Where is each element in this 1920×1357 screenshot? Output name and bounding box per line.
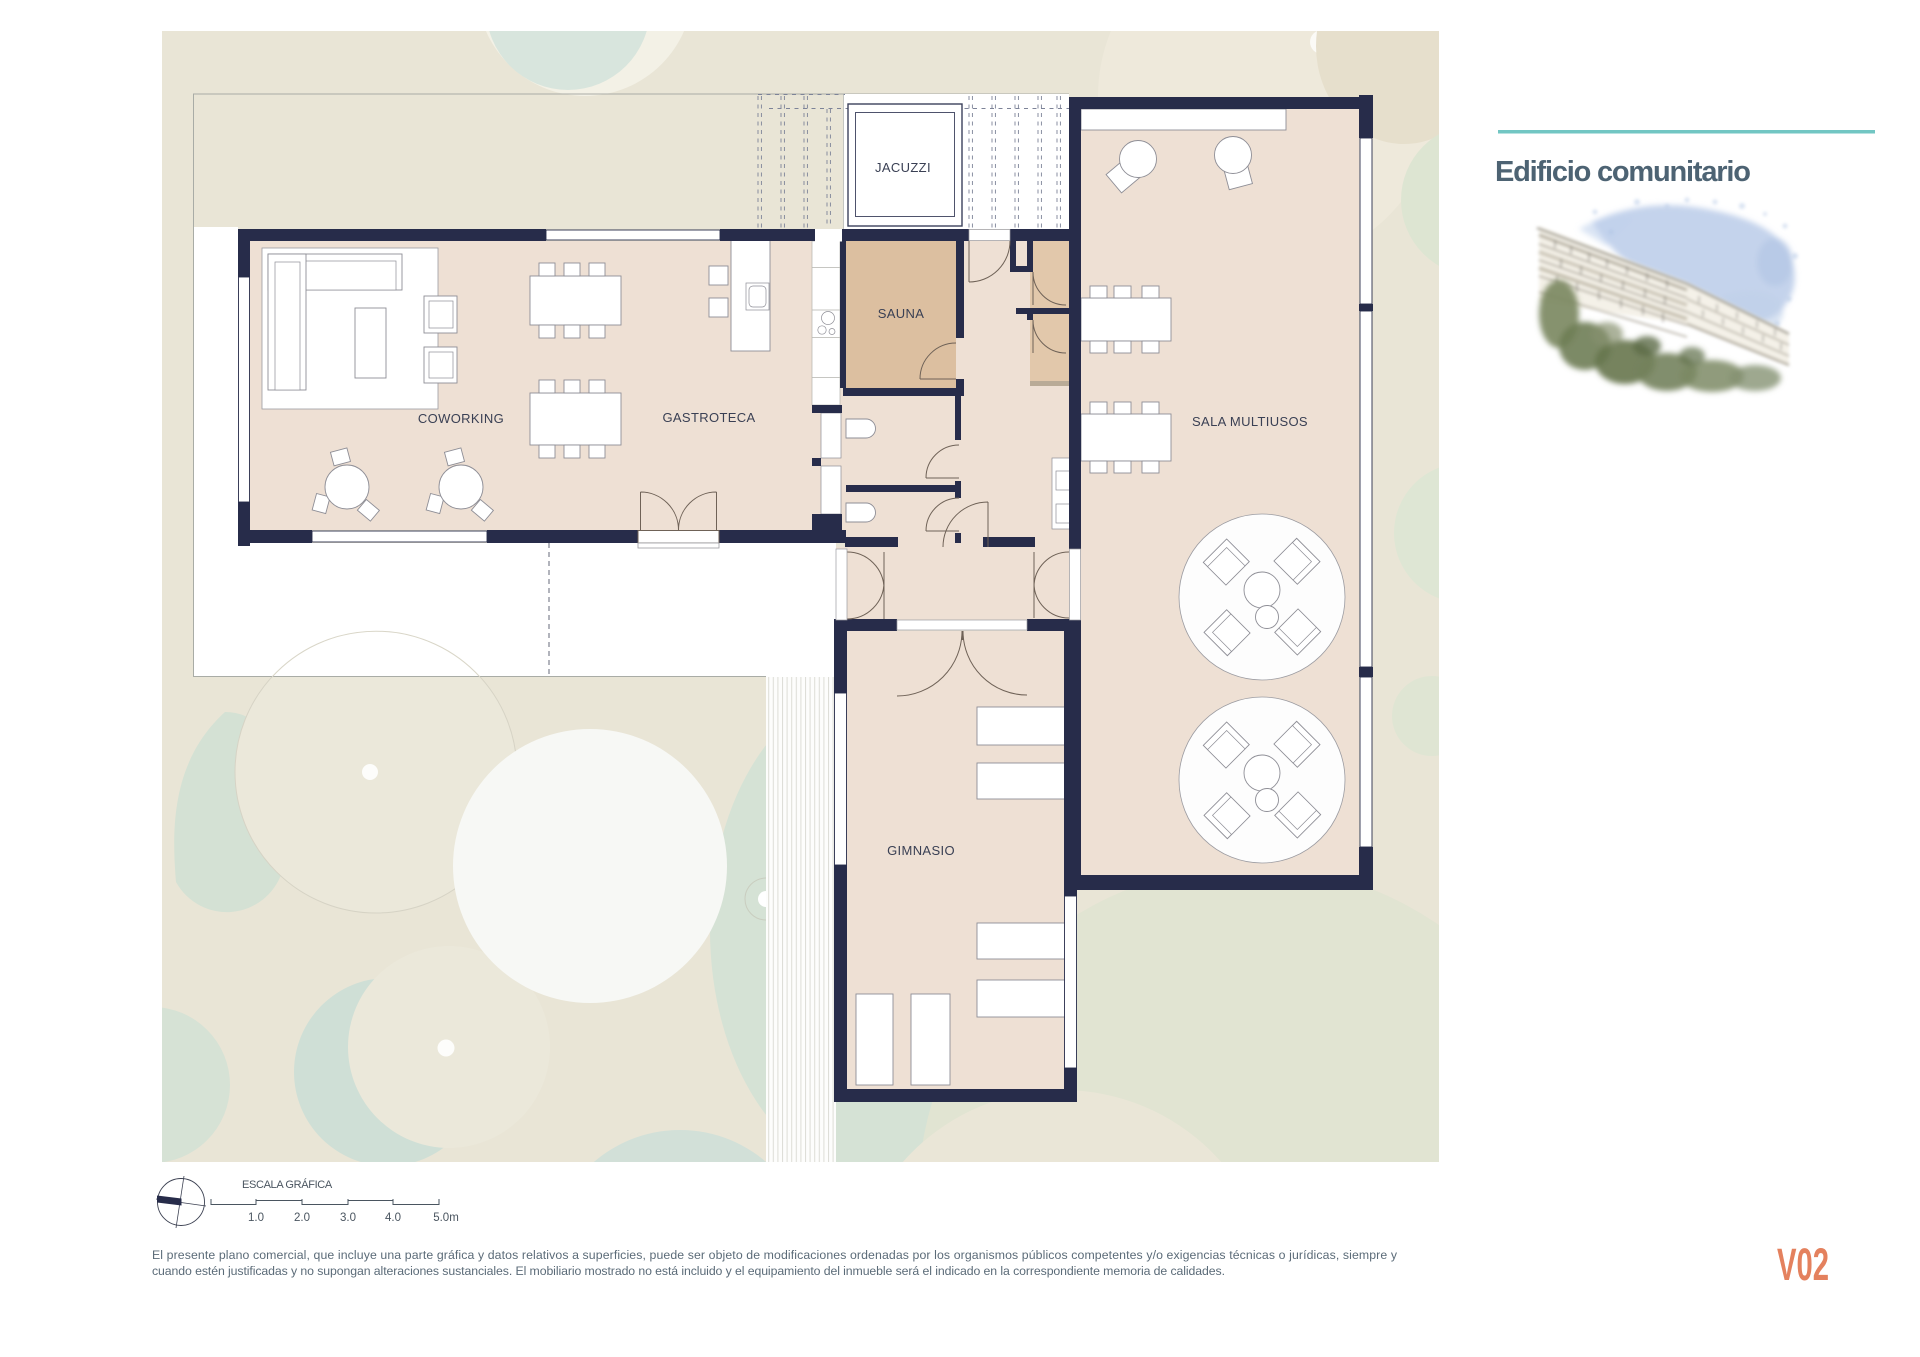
svg-text:2.0: 2.0 (294, 1212, 310, 1224)
svg-text:GASTROTECA: GASTROTECA (662, 410, 755, 425)
svg-text:El presente plano comercial, q: El presente plano comercial, que incluye… (152, 1248, 1398, 1262)
svg-text:3.0: 3.0 (340, 1212, 356, 1224)
svg-text:V02: V02 (1777, 1239, 1829, 1290)
svg-text:cuando estén justificadas y no: cuando estén justificadas y no supongan … (152, 1264, 1225, 1278)
svg-text:1.0: 1.0 (248, 1212, 264, 1224)
svg-text:SAUNA: SAUNA (878, 306, 925, 321)
svg-text:GIMNASIO: GIMNASIO (887, 843, 955, 858)
svg-text:COWORKING: COWORKING (418, 411, 504, 426)
svg-text:Edificio comunitario: Edificio comunitario (1495, 156, 1750, 188)
svg-text:ESCALA GRÁFICA: ESCALA GRÁFICA (242, 1178, 333, 1191)
svg-text:5.0m: 5.0m (433, 1212, 459, 1224)
svg-text:JACUZZI: JACUZZI (875, 160, 931, 175)
svg-text:4.0: 4.0 (385, 1212, 401, 1224)
svg-text:SALA MULTIUSOS: SALA MULTIUSOS (1192, 414, 1308, 429)
